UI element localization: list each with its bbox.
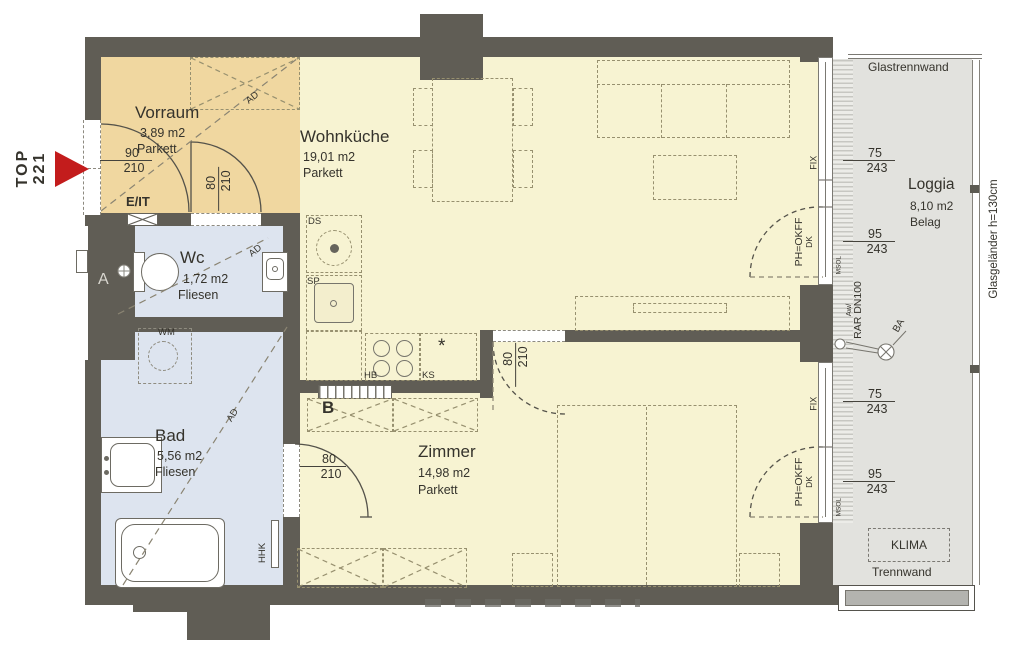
- bed: [557, 405, 737, 587]
- label-wc-name: Wc: [180, 249, 205, 267]
- label-zimmer-name: Zimmer: [418, 443, 476, 461]
- label-msol-upper: MSOL: [837, 248, 844, 274]
- dining-chair-3: [513, 88, 533, 126]
- sofa-cushion-divider-1: [661, 84, 662, 138]
- wall-left-upper: [85, 37, 101, 120]
- eit-cross-lines: [128, 214, 157, 225]
- pillar-bottom: [187, 598, 270, 640]
- section-b-element: [318, 385, 392, 399]
- trennwand-slab-inner: [845, 590, 969, 606]
- label-bad-area: 5,56 m2: [157, 450, 202, 463]
- label-wc-area: 1,72 m2: [183, 273, 228, 286]
- label-trennwand: Trennwand: [872, 566, 932, 579]
- label-ds: DS: [308, 217, 321, 227]
- unit-marker: TOP 221: [15, 138, 51, 198]
- label-rar: RAR DN100: [853, 270, 864, 350]
- zimmer-door-opening: [493, 330, 565, 342]
- toilet-bowl: [141, 253, 179, 291]
- balcony-upper-label: PH=OKFF: [794, 207, 805, 277]
- label-wohnkueche-area: 19,01 m2: [303, 151, 355, 164]
- nightstand-left: [512, 553, 553, 587]
- dim-window-lower-fix: 75 243: [843, 387, 895, 417]
- window-band-lower: [818, 362, 833, 523]
- unit-number: 221: [32, 138, 49, 198]
- dim-zimmer-width: 80: [501, 343, 516, 387]
- dim-zimmer-door: 80 210: [501, 343, 531, 387]
- dim-window-lower-door: 95 243: [843, 467, 895, 497]
- label-sp: SP: [307, 277, 320, 287]
- bad-basin-tap-dot: [104, 456, 109, 461]
- label-fix-lower: FIX: [809, 387, 818, 411]
- label-wc-floor: Fliesen: [178, 289, 218, 302]
- nightstand-right: [739, 553, 780, 587]
- label-msol-lower: MSOL: [837, 490, 844, 516]
- label-hhk: HHK: [258, 533, 268, 563]
- label-wohnkueche-name: Wohnküche: [300, 128, 389, 146]
- label-bad-floor: Fliesen: [155, 466, 195, 479]
- zimmer-wardrobe-bottom-2: [383, 548, 467, 588]
- label-vorraum-area: 3,89 m2: [140, 127, 185, 140]
- zimmer-wardrobe-top-1: [307, 398, 393, 432]
- bad-door-opening: [283, 444, 300, 517]
- label-zimmer-floor: Parkett: [418, 484, 458, 497]
- hob-burner-2: [396, 340, 413, 357]
- label-section-a: A: [98, 272, 109, 289]
- glastrennwand-line: [848, 54, 982, 59]
- label-zimmer-area: 14,98 m2: [418, 467, 470, 480]
- dim-bad-width: 80: [300, 452, 346, 467]
- entrance-opening-divider: [83, 168, 101, 169]
- label-klima: KLIMA: [891, 539, 927, 552]
- hob-burner-4: [396, 360, 413, 377]
- wall-zimmer-north-right: [565, 330, 818, 342]
- dim-wc-width: 80: [204, 167, 219, 211]
- wall-left-lower: [85, 360, 101, 605]
- label-balcony-door-lower: PH=OKFF DK: [794, 447, 818, 517]
- eit-element: [127, 213, 158, 226]
- dim-lower-door-h: 243: [843, 482, 895, 496]
- dim-bad-height: 210: [300, 467, 346, 481]
- wall-facade-mid-chunk: [800, 285, 833, 362]
- label-pipe-group: Aw/ RAR DN100: [845, 270, 867, 350]
- zimmer-wardrobe-top-2: [393, 398, 478, 432]
- watermark-fragments: [425, 599, 640, 607]
- dim-entrance-width: 90: [100, 146, 152, 161]
- label-wm: WM: [158, 328, 175, 338]
- label-wohnkueche-floor: Parkett: [303, 167, 343, 180]
- label-bad-name: Bad: [155, 427, 185, 445]
- bathtub-drain: [133, 546, 146, 559]
- dining-table: [432, 78, 513, 202]
- floorplan: TOP 221 Vorraum 3,89 m2 Parkett Wohnküch…: [0, 0, 1024, 659]
- hhk-radiator: [271, 520, 279, 568]
- dim-upper-door-w: 95: [843, 227, 895, 242]
- shaft-a: [88, 222, 135, 360]
- balcony-upper-sublabel: DK: [805, 207, 814, 277]
- railing-tick-1: [970, 185, 979, 193]
- railing-tick-2: [970, 365, 979, 373]
- bed-center-line: [646, 407, 647, 585]
- unit-label: TOP: [15, 138, 32, 198]
- label-loggia-area: 8,10 m2: [910, 200, 953, 213]
- dim-upper-fix-w: 75: [843, 146, 895, 161]
- label-ks-star: *: [438, 337, 445, 357]
- label-hb: HB: [364, 371, 377, 381]
- bad-basin-tap-dot2: [104, 470, 109, 475]
- wc-basin-drain: [272, 266, 278, 272]
- kitchen-vent-dot: [330, 244, 339, 253]
- wall-facade-bottom-chunk: [800, 523, 833, 585]
- sideboard: [575, 296, 790, 331]
- label-balcony-door-upper: PH=OKFF DK: [794, 207, 818, 277]
- wall-zimmer-stub: [480, 330, 493, 398]
- label-ks: KS: [422, 371, 435, 381]
- label-loggia-name: Loggia: [908, 177, 955, 193]
- vorraum-wardrobe: [190, 57, 300, 110]
- kitchen-counter-corner: [306, 331, 362, 381]
- kitchen-sink-drain-dot: [330, 300, 337, 307]
- label-klima-box: KLIMA: [868, 528, 950, 562]
- dim-entrance-height: 210: [100, 161, 152, 175]
- sofa: [597, 60, 790, 138]
- balcony-lower-sublabel: DK: [805, 447, 814, 517]
- dim-entrance-door: 90 210: [100, 146, 152, 176]
- window-band-upper: [818, 57, 833, 285]
- balcony-lower-label: PH=OKFF: [794, 447, 805, 517]
- dim-wc-door: 80 210: [204, 167, 234, 211]
- wall-bottom-step: [133, 598, 187, 612]
- glass-railing: [972, 60, 980, 585]
- sofa-cushion-divider-2: [726, 84, 727, 138]
- sofa-backrest-line: [597, 84, 790, 85]
- dim-bad-door: 80 210: [300, 452, 346, 482]
- washing-machine-drum: [148, 341, 178, 371]
- label-section-b: B: [322, 399, 334, 417]
- pillar-top: [420, 14, 483, 80]
- wall-meter-box: [76, 250, 88, 273]
- dim-lower-fix-w: 75: [843, 387, 895, 402]
- dim-zimmer-height: 210: [517, 343, 531, 387]
- hob-burner-1: [373, 340, 390, 357]
- wc-door-opening: [191, 213, 261, 226]
- label-glasgelaender: Glasgeländer h=130cm: [988, 164, 1000, 314]
- wall-wc-bad-divider: [101, 317, 283, 332]
- dim-upper-fix-h: 243: [843, 161, 895, 175]
- coffee-table: [653, 155, 737, 200]
- label-loggia-floor: Belag: [910, 216, 941, 229]
- label-eit: E/IT: [126, 195, 150, 209]
- label-glastrennwand: Glastrennwand: [868, 61, 949, 74]
- dim-window-upper-door: 95 243: [843, 227, 895, 257]
- label-vorraum-name: Vorraum: [135, 104, 199, 122]
- dim-upper-door-h: 243: [843, 242, 895, 256]
- dining-chair-1: [413, 88, 433, 126]
- dining-chair-2: [413, 150, 433, 188]
- sideboard-inner: [633, 303, 727, 313]
- dim-lower-door-w: 95: [843, 467, 895, 482]
- zimmer-wardrobe-bottom-1: [297, 548, 383, 588]
- dining-chair-4: [513, 150, 533, 188]
- dim-lower-fix-h: 243: [843, 402, 895, 416]
- dim-window-upper-fix: 75 243: [843, 146, 895, 176]
- label-fix-upper: FIX: [809, 146, 818, 170]
- bad-basin-bowl: [110, 443, 155, 487]
- dim-wc-height: 210: [220, 167, 234, 211]
